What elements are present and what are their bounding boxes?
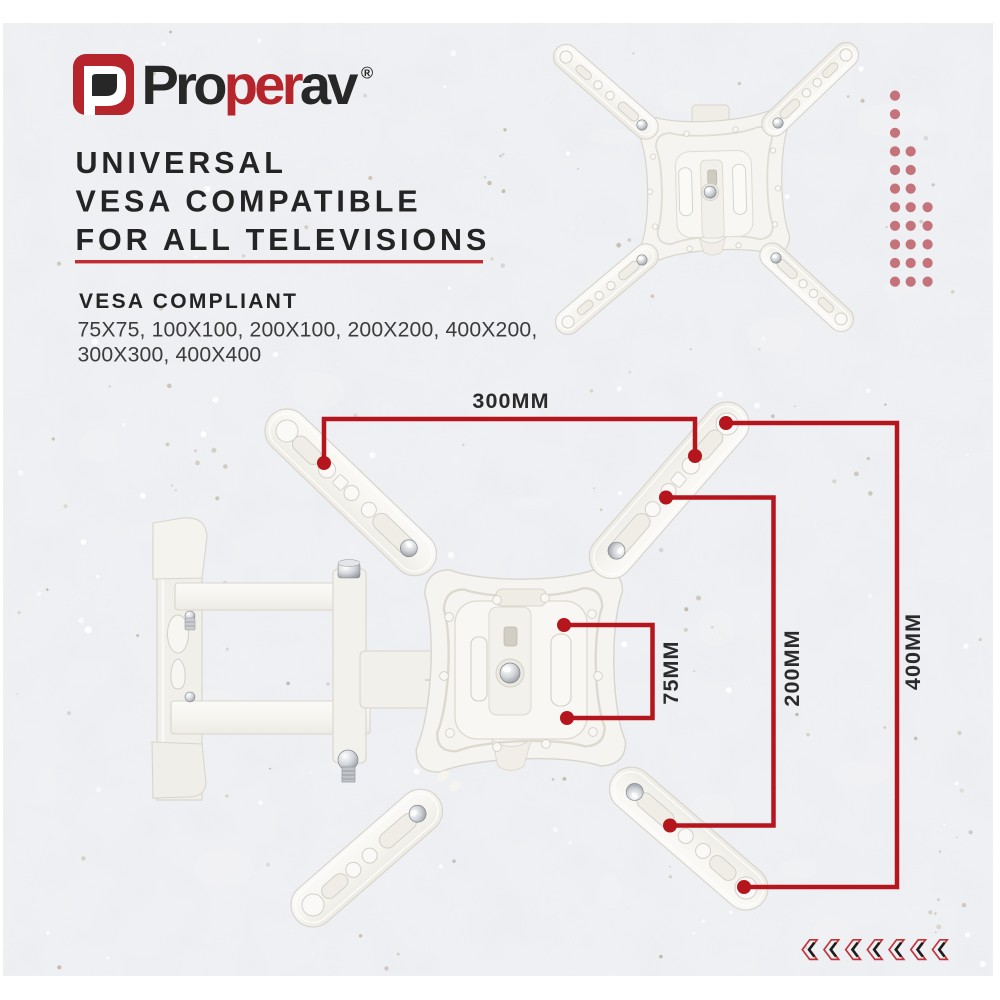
svg-text:400MM: 400MM [901,613,925,690]
svg-text:75X75, 100X100, 200X100, 200X2: 75X75, 100X100, 200X100, 200X200, 400X20… [78,319,538,342]
svg-text:VESA COMPLIANT: VESA COMPLIANT [79,290,298,313]
svg-text:200MM: 200MM [780,629,804,706]
svg-text:Properav: Properav [142,53,359,116]
svg-text:VESA COMPATIBLE: VESA COMPATIBLE [76,185,422,219]
svg-text:300MM: 300MM [472,389,549,413]
svg-text:UNIVERSAL: UNIVERSAL [76,146,287,180]
svg-text:75MM: 75MM [659,640,683,704]
svg-text:®: ® [361,65,373,83]
svg-text:300X300, 400X400: 300X300, 400X400 [78,344,262,367]
svg-text:FOR ALL TELEVISIONS: FOR ALL TELEVISIONS [76,223,491,257]
